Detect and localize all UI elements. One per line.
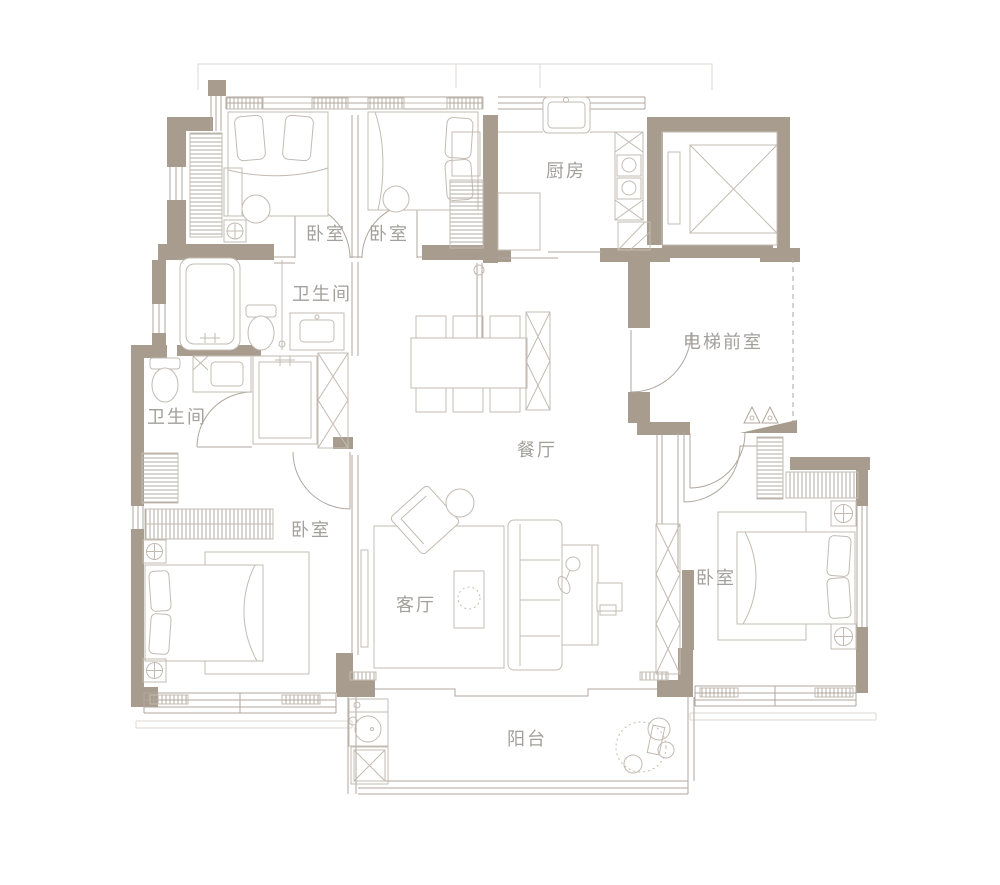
ceiling-fixture-icon (143, 540, 166, 563)
exterior-context-lines (198, 64, 712, 90)
room-label-bedroom-right: 卧室 (696, 564, 736, 590)
entry-direction-markers (744, 407, 778, 423)
room-label-living-room: 客厅 (396, 591, 436, 617)
room-label-bedroom-left: 卧室 (291, 516, 331, 542)
corridor-cabinet (656, 524, 680, 674)
ceiling-fixture-icon (224, 220, 246, 242)
room-label-bathroom-lower: 卫生间 (147, 403, 207, 429)
elevator-shaft (662, 132, 777, 245)
dining-furniture (411, 312, 550, 412)
floor-plan-drawing (0, 0, 1000, 885)
room-label-elevator-vestibule: 电梯前室 (683, 328, 763, 354)
room-label-bathroom-upper: 卫生间 (292, 280, 352, 306)
room-label-kitchen: 厨房 (546, 157, 586, 183)
ceiling-fixture-icon (143, 659, 166, 682)
room-label-dining-room: 餐厅 (517, 436, 557, 462)
bedroom-left-furniture (142, 453, 309, 682)
room-label-bedroom-top-left: 卧室 (306, 220, 346, 246)
ceiling-fixture-icon (831, 501, 856, 526)
living-room-furniture (361, 485, 622, 670)
bathroom-lower-fixtures (150, 353, 348, 448)
ceiling-fixture-icon (831, 624, 856, 649)
floor-plan: 卧室 卧室 厨房 卫生间 电梯前室 卫生间 餐厅 卧室 客厅 卧室 阳台 (0, 0, 1000, 885)
plant (616, 718, 674, 773)
room-label-bedroom-top-middle: 卧室 (369, 220, 409, 246)
room-label-balcony: 阳台 (507, 725, 547, 751)
